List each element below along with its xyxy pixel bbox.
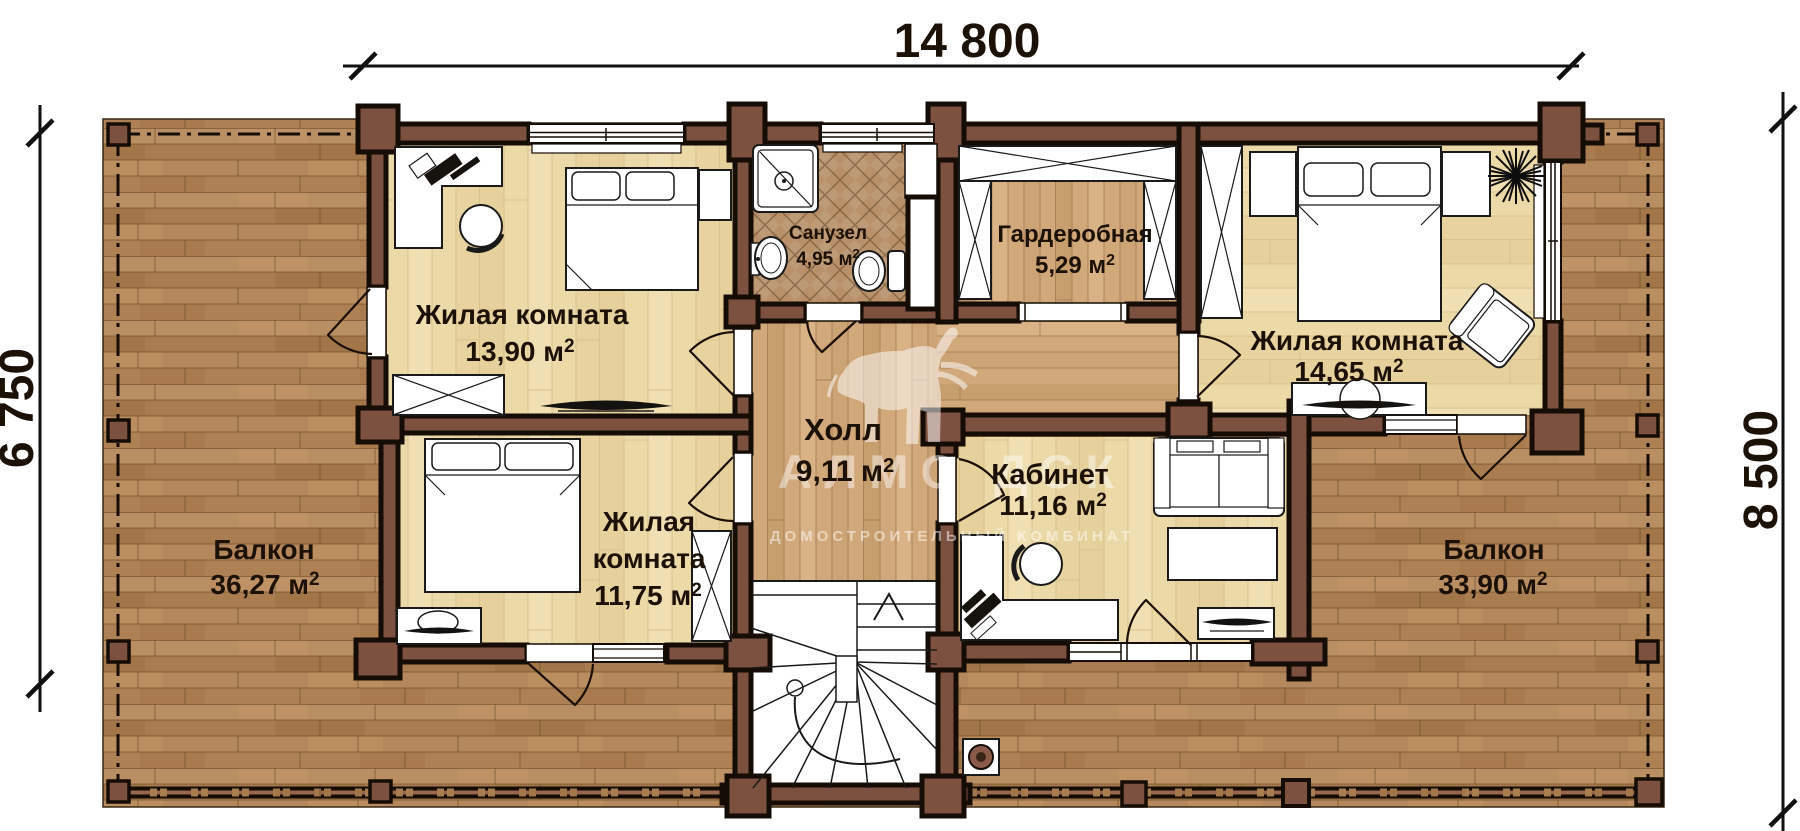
svg-text:комната: комната xyxy=(593,543,706,574)
svg-text:Балкон: Балкон xyxy=(1443,534,1544,565)
svg-text:36,27 м2: 36,27 м2 xyxy=(210,569,319,600)
svg-text:ДОМОСТРОИТЕЛЬНЫЙ КОМБИНАТ: ДОМОСТРОИТЕЛЬНЫЙ КОМБИНАТ xyxy=(770,527,1134,545)
svg-text:13,90 м2: 13,90 м2 xyxy=(465,336,574,367)
svg-text:Холл: Холл xyxy=(804,412,882,447)
svg-text:Санузел: Санузел xyxy=(789,223,867,244)
svg-text:6 750: 6 750 xyxy=(0,348,44,468)
svg-text:4,95 м2: 4,95 м2 xyxy=(796,246,860,270)
svg-text:9,11 м2: 9,11 м2 xyxy=(796,455,894,488)
svg-text:5,29 м2: 5,29 м2 xyxy=(1035,252,1115,279)
svg-text:8 500: 8 500 xyxy=(1735,410,1788,530)
svg-text:Кабинет: Кабинет xyxy=(991,459,1108,491)
svg-text:Жилая комната: Жилая комната xyxy=(1250,325,1464,356)
svg-text:14 800: 14 800 xyxy=(894,15,1041,68)
svg-text:Жилая комната: Жилая комната xyxy=(415,299,629,330)
svg-text:11,75 м2: 11,75 м2 xyxy=(594,580,702,611)
svg-text:Балкон: Балкон xyxy=(213,534,314,565)
svg-text:11,16 м2: 11,16 м2 xyxy=(999,490,1107,521)
svg-text:33,90 м2: 33,90 м2 xyxy=(1438,569,1547,600)
svg-text:Гардеробная: Гардеробная xyxy=(997,221,1152,248)
svg-text:Жилая: Жилая xyxy=(602,506,695,537)
svg-text:14,65 м2: 14,65 м2 xyxy=(1294,356,1403,387)
